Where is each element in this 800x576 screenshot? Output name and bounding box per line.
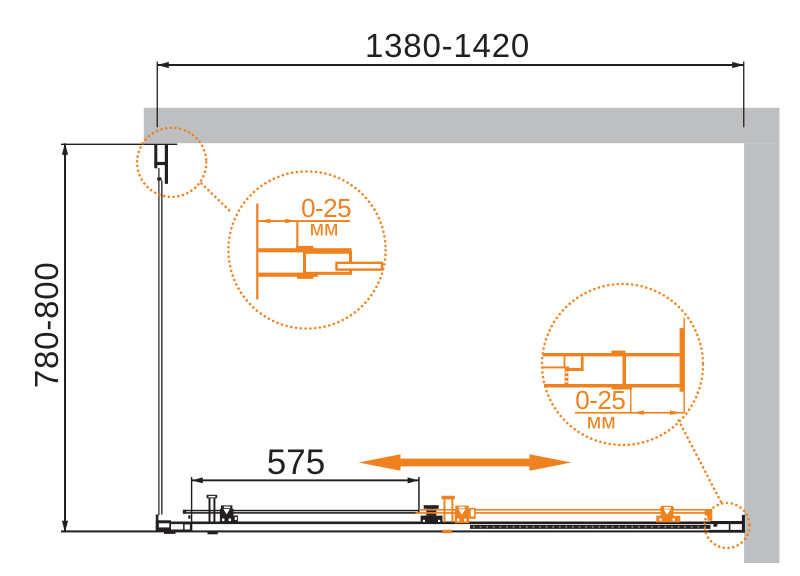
svg-text:780-800: 780-800 bbox=[28, 261, 65, 388]
svg-text:1380-1420: 1380-1420 bbox=[365, 27, 530, 64]
svg-text:мм: мм bbox=[587, 411, 616, 434]
svg-text:мм: мм bbox=[310, 217, 339, 240]
svg-text:575: 575 bbox=[267, 443, 325, 482]
